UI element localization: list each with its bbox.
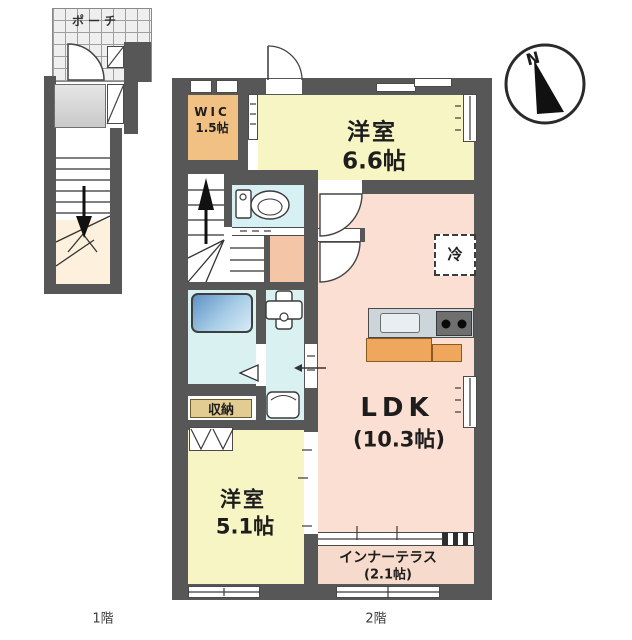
window-bedroom66-right bbox=[463, 94, 477, 142]
terrace-size-label: (2.1帖) bbox=[364, 569, 412, 582]
window-bedroom66-top-sash2 bbox=[414, 78, 452, 87]
bedroom66-name-label: 洋室 bbox=[347, 122, 397, 145]
ldk-size-label: (10.3帖) bbox=[353, 430, 445, 451]
stair-treads-area-1f bbox=[56, 128, 110, 220]
ldk-name-label: LDK bbox=[360, 395, 433, 421]
bathtub bbox=[191, 293, 253, 333]
floor2-label: 2階 bbox=[365, 613, 386, 626]
stove-burners bbox=[436, 311, 472, 336]
window-bedroom51-bottom bbox=[188, 586, 260, 598]
wall-wic-right bbox=[238, 95, 248, 160]
kitchen-cabinet-large bbox=[366, 338, 432, 362]
entrance-door-arc bbox=[268, 46, 302, 80]
bathroom-door-gap bbox=[256, 344, 266, 386]
entrance-door-gap bbox=[266, 79, 302, 94]
wic-size-label: 1.5帖 bbox=[195, 122, 228, 134]
bedroom66-size-label: 6.6帖 bbox=[342, 151, 406, 174]
closet-folding-doors bbox=[189, 427, 233, 451]
wic-name-label: WIC bbox=[194, 106, 230, 118]
terrace-sliding-door bbox=[318, 532, 442, 546]
room-toilet bbox=[232, 185, 304, 227]
compass bbox=[506, 45, 584, 123]
porch-sidelight-window bbox=[107, 46, 124, 68]
terrace-name-label: インナーテラス bbox=[339, 551, 437, 565]
room-washroom bbox=[264, 290, 304, 420]
washroom-sliding-door bbox=[305, 344, 317, 388]
toilet-sliding-door bbox=[232, 227, 304, 236]
bedroom51-name-label: 洋室 bbox=[220, 490, 266, 511]
wall-1f-stair-right bbox=[110, 128, 122, 294]
compass-needle bbox=[534, 60, 564, 114]
wall-2f-right bbox=[474, 78, 492, 600]
terrace-fixed-window bbox=[442, 532, 474, 546]
floor-plan-canvas: ポーチ 冷 bbox=[0, 0, 632, 640]
window-wic-top-1 bbox=[190, 80, 212, 93]
wic-accordion-door bbox=[248, 94, 258, 140]
wall-1f-genkan-right bbox=[124, 82, 138, 134]
window-ldk-right bbox=[463, 376, 477, 428]
floor1-label: 1階 bbox=[92, 613, 113, 626]
kitchen-cabinet-small bbox=[432, 344, 462, 362]
entrance-hall-1f bbox=[54, 84, 106, 128]
window-wic-top-2 bbox=[216, 80, 238, 93]
wall-bath-bottom bbox=[180, 384, 256, 396]
storage-label-box: 収納 bbox=[190, 399, 252, 418]
bedroom51-size-label: 5.1帖 bbox=[216, 517, 274, 538]
window-bedroom66-top-sash1 bbox=[376, 83, 416, 92]
wall-bath-top bbox=[180, 282, 304, 290]
wall-corridor-stub bbox=[360, 228, 365, 242]
window-terrace-bottom bbox=[336, 586, 440, 598]
bedroom51-sliding-door bbox=[304, 432, 318, 534]
refrigerator-label: 冷 bbox=[447, 248, 462, 263]
hall-landing bbox=[268, 236, 304, 282]
shoe-cabinet bbox=[107, 84, 124, 124]
porch-label: ポーチ bbox=[72, 15, 120, 27]
wall-bedroom66-bottom bbox=[362, 180, 474, 194]
kitchen-sink bbox=[380, 313, 420, 333]
wall-toilet-left bbox=[224, 185, 232, 227]
wall-2f-left bbox=[172, 78, 188, 600]
compass-n-label: N bbox=[524, 50, 541, 69]
corridor-door-gap bbox=[318, 228, 360, 242]
wall-1f-porch-right bbox=[124, 42, 151, 82]
